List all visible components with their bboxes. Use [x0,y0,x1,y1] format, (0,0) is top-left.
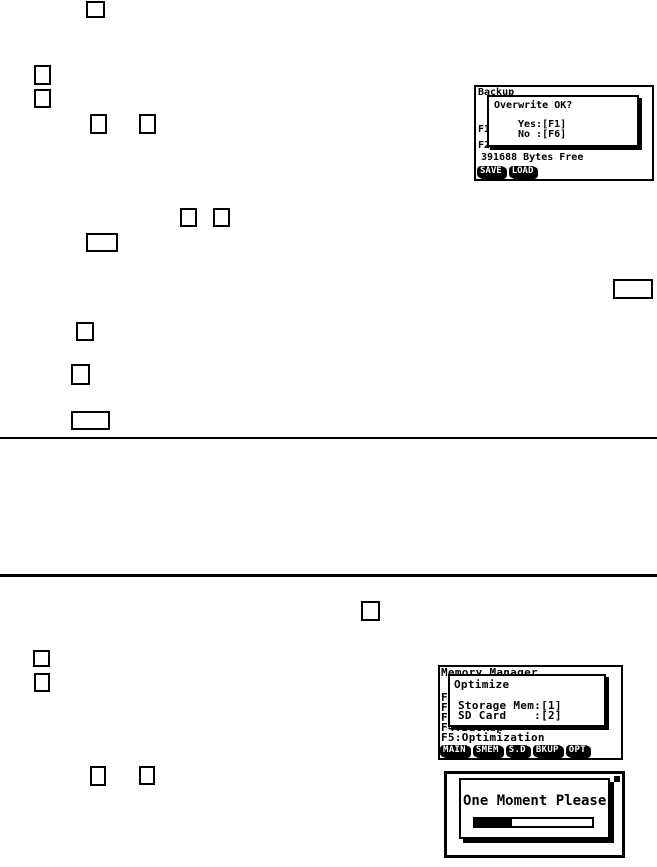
fkey-opt: OPT [566,745,589,757]
function-key-menu: MAIN SMEM S.D BKUP OPT [440,745,589,757]
calculator-key-box [213,208,230,227]
fkey-sd: S.D [506,745,529,757]
menu-row-f5: F5:Optimization [441,733,545,743]
dialog-option-sdcard: SD Card :[2] [458,711,562,721]
calculator-key-box [361,601,380,621]
calculator-key-box [76,322,94,341]
progress-fill [475,819,512,826]
calculator-key-box [180,208,197,227]
optimize-dialog: Optimize Storage Mem:[1] SD Card :[2] [448,674,606,727]
calculator-key-box [139,114,156,134]
lcd-screen-memory-manager: Memory Manager F1 F2 F3 F4:Backup F5:Opt… [438,665,623,760]
calculator-key-box [90,114,107,134]
lcd-screen-backup: Backup F1 F2:Load Backup Data Overwrite … [474,85,654,181]
fkey-main: MAIN [440,745,469,757]
fkey-load: LOAD [509,166,537,178]
calculator-key-box [86,1,105,18]
calculator-key-box [71,364,90,385]
busy-indicator-square [614,776,620,782]
overwrite-dialog: Overwrite OK? Yes:[F1] No :[F6] [487,95,639,147]
calculator-key-box [139,766,155,785]
calculator-key-box [34,673,50,692]
calculator-key-box [71,411,110,430]
progress-bar [473,817,594,828]
fkey-save: SAVE [477,166,505,178]
lcd-screen-one-moment: One Moment Please [444,771,625,858]
calculator-key-box [613,279,653,299]
calculator-key-box [33,650,50,667]
manual-page: Backup F1 F2:Load Backup Data Overwrite … [0,0,657,867]
section-divider [0,574,657,577]
function-key-menu: SAVE LOAD [477,166,536,178]
calculator-key-box [90,766,106,786]
calculator-key-box [34,65,51,85]
one-moment-message: One Moment Please [463,794,606,808]
fkey-smem: SMEM [473,745,502,757]
section-divider [0,437,657,439]
calculator-key-box [34,89,51,108]
bytes-free-label: 391688 Bytes Free [481,153,583,163]
one-moment-dialog: One Moment Please [459,778,610,839]
calculator-key-box [86,233,118,252]
dialog-title: Overwrite OK? [494,101,572,111]
dialog-no-option: No :[F6] [518,130,566,140]
fkey-bkup: BKUP [533,745,562,757]
dialog-title: Optimize [454,680,509,690]
